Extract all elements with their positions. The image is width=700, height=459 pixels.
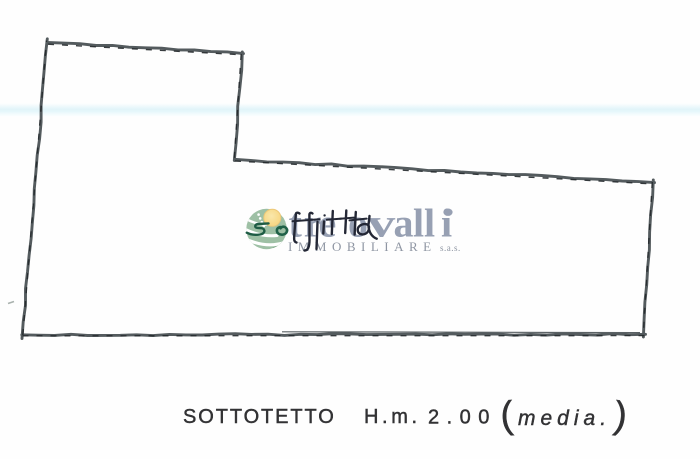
svg-text:SOTTOTETTO: SOTTOTETTO [183, 406, 336, 428]
svg-text:H.m.: H.m. [364, 406, 421, 428]
svg-text:media.: media. [518, 407, 611, 430]
svg-text:s.a.s.: s.a.s. [440, 243, 461, 253]
svg-text:2.00: 2.00 [428, 407, 497, 429]
